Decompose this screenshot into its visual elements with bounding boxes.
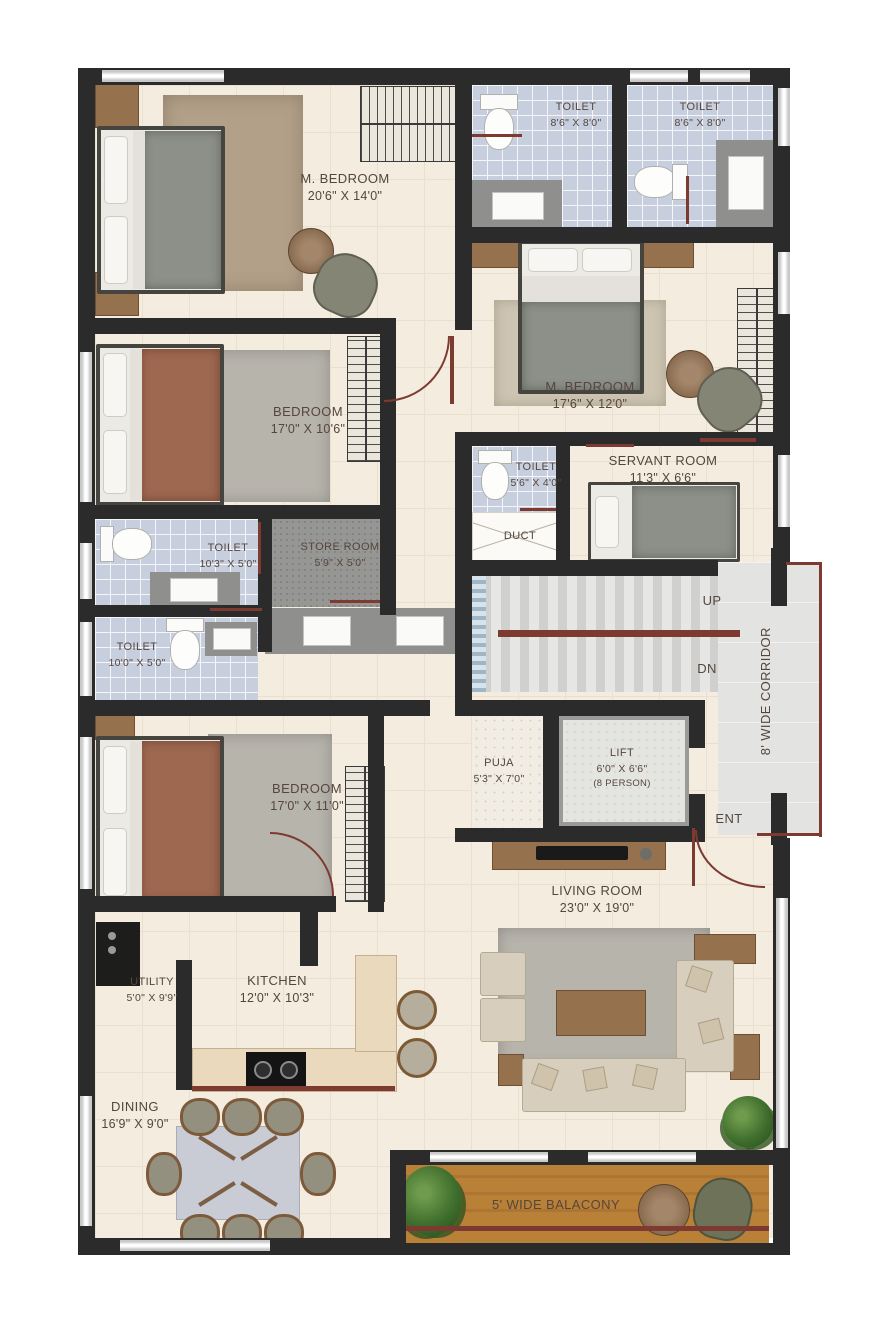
window xyxy=(80,543,92,599)
label-utility: UTILITY 5'0" X 9'9" xyxy=(127,975,178,1006)
bed xyxy=(97,126,225,294)
floor-plan: M. BEDROOM 20'6" X 14'0" TOILET 8'6" X 8… xyxy=(0,0,887,1331)
dining-chair xyxy=(300,1152,336,1196)
room-name: 5' WIDE BALACONY xyxy=(492,1196,620,1214)
room-dims: 8'6" X 8'0" xyxy=(551,116,602,131)
wall xyxy=(455,68,472,330)
room-name: 8' WIDE CORRIDOR xyxy=(757,627,775,755)
stair-rail xyxy=(472,576,486,692)
label-duct: DUCT xyxy=(504,529,536,545)
armchair xyxy=(480,952,526,996)
window xyxy=(630,70,688,82)
label-servant-room: SERVANT ROOM 11'3" X 6'6" xyxy=(609,452,718,488)
room-dims: 17'0" X 11'0" xyxy=(270,798,344,816)
label-toilet-mid: TOILET 10'3" X 5'0" xyxy=(199,541,256,572)
room-name: BEDROOM xyxy=(270,780,344,798)
room-dims: 10'3" X 5'0" xyxy=(199,557,256,572)
washbasin xyxy=(728,156,764,210)
door-line xyxy=(520,508,556,511)
door-line xyxy=(210,608,262,611)
room-name: BEDROOM xyxy=(271,403,346,421)
wall xyxy=(612,78,627,235)
label-balcony: 5' WIDE BALACONY xyxy=(492,1196,620,1214)
wall-lift-right xyxy=(689,700,705,748)
label-toilet-lower: TOILET 10'0" X 5'0" xyxy=(108,640,165,671)
wall-lift-left xyxy=(543,700,559,842)
window xyxy=(778,252,790,314)
label-entrance: ENT xyxy=(715,810,742,828)
window xyxy=(778,88,790,146)
window xyxy=(778,455,790,527)
wall-stub xyxy=(771,548,787,606)
label-puja: PUJA 5'3" X 7'0" xyxy=(474,756,525,787)
room-name: KITCHEN xyxy=(240,972,315,990)
bed xyxy=(96,344,224,506)
room-name: PUJA xyxy=(474,756,525,772)
room-dims: 23'0" X 19'0" xyxy=(551,900,642,918)
sofa-side-table xyxy=(498,1054,524,1086)
burner xyxy=(280,1061,298,1079)
room-name: DUCT xyxy=(504,529,536,545)
door-line xyxy=(586,444,634,447)
window xyxy=(80,352,92,502)
armchair xyxy=(480,998,526,1042)
room-dims: 17'6" X 12'0" xyxy=(545,396,634,414)
wall xyxy=(176,960,192,1090)
stairs-direction: DN xyxy=(697,660,717,678)
room-name: SERVANT ROOM xyxy=(609,452,718,470)
label-lift: LIFT 6'0" X 6'6" (8 PERSON) xyxy=(593,746,650,790)
window xyxy=(700,70,750,82)
room-name: TOILET xyxy=(511,460,562,476)
corridor-boundary xyxy=(819,562,822,837)
room-name: M. BEDROOM xyxy=(545,378,634,396)
room-dims: 16'9" X 9'0" xyxy=(101,1116,168,1134)
room-dims: 5'6" X 4'0" xyxy=(511,476,562,491)
room-name: TOILET xyxy=(551,100,602,116)
servant-bed xyxy=(588,482,740,562)
washer-dial xyxy=(108,946,116,954)
wall-lift-bottom xyxy=(543,826,705,842)
room-dims: 8'6" X 8'0" xyxy=(675,116,726,131)
decor xyxy=(640,848,652,860)
wall xyxy=(78,605,258,617)
nightstand xyxy=(95,84,139,128)
wall xyxy=(455,828,555,842)
wall xyxy=(455,227,790,243)
label-master-bedroom-2: M. BEDROOM 17'6" X 12'0" xyxy=(545,378,634,414)
wall-balcony-bottom xyxy=(390,1243,786,1255)
washbasin xyxy=(396,616,444,646)
wall xyxy=(272,505,396,519)
label-corridor: 8' WIDE CORRIDOR xyxy=(757,627,775,755)
wall xyxy=(300,896,318,966)
toilet-wc xyxy=(484,108,514,150)
label-toilet-top-left: TOILET 8'6" X 8'0" xyxy=(551,100,602,131)
room-name: ENT xyxy=(715,810,742,828)
washbasin xyxy=(170,578,218,602)
kitchen-counter-edge xyxy=(192,1086,395,1091)
wall xyxy=(455,440,472,716)
wall xyxy=(455,560,718,576)
stair-rail-line xyxy=(498,630,740,637)
room-name: TOILET xyxy=(675,100,726,116)
room-dims: 11'3" X 6'6" xyxy=(609,470,718,488)
room-name: TOILET xyxy=(108,640,165,656)
room-dims: 10'0" X 5'0" xyxy=(108,656,165,671)
corridor-boundary xyxy=(757,833,822,836)
window xyxy=(80,1096,92,1226)
label-store-room: STORE ROOM 5'9" X 5'0" xyxy=(297,540,383,571)
door-line xyxy=(700,438,756,442)
room-name: LIVING ROOM xyxy=(551,882,642,900)
toilet-wc xyxy=(112,528,152,560)
bed xyxy=(96,736,224,906)
wall xyxy=(78,318,396,334)
coffee-table xyxy=(556,990,646,1036)
room-name: STORE ROOM xyxy=(297,540,383,556)
kitchen-counter xyxy=(355,955,397,1052)
window xyxy=(588,1152,696,1162)
washbasin xyxy=(303,616,351,646)
label-master-bedroom-1: M. BEDROOM 20'6" X 14'0" xyxy=(300,170,389,206)
window xyxy=(80,622,92,696)
window xyxy=(102,70,224,82)
room-name: LIFT xyxy=(593,746,650,762)
bar-stool xyxy=(397,990,437,1030)
bed xyxy=(518,240,644,394)
window xyxy=(120,1240,270,1251)
dining-chair xyxy=(146,1152,182,1196)
label-toilet-servant: TOILET 5'6" X 4'0" xyxy=(511,460,562,491)
dining-chair xyxy=(264,1098,304,1136)
room-dims: 5'0" X 9'9" xyxy=(127,991,178,1006)
toilet-wc xyxy=(634,166,676,198)
room-dims: 17'0" X 10'6" xyxy=(271,421,346,439)
dining-table xyxy=(176,1126,300,1220)
room-dims: 20'6" X 14'0" xyxy=(300,188,389,206)
window xyxy=(80,737,92,889)
label-kitchen: KITCHEN 12'0" X 10'3" xyxy=(240,972,315,1008)
label-stairs-dn: DN xyxy=(697,660,717,678)
tv xyxy=(536,846,628,860)
plant xyxy=(722,1096,774,1148)
wall xyxy=(78,505,272,519)
door-line xyxy=(258,522,261,574)
room-dims: 12'0" X 10'3" xyxy=(240,990,315,1008)
toilet-wc xyxy=(170,630,200,670)
label-bedroom-1: BEDROOM 17'0" X 10'6" xyxy=(271,403,346,439)
wall xyxy=(455,700,705,716)
sofa-side-table xyxy=(730,1034,760,1080)
bar-stool xyxy=(397,1038,437,1078)
washbasin xyxy=(492,192,544,220)
room-dims: 5'9" X 5'0" xyxy=(297,556,383,571)
label-living-room: LIVING ROOM 23'0" X 19'0" xyxy=(551,882,642,918)
window xyxy=(430,1152,548,1162)
wall xyxy=(78,896,336,912)
door-line xyxy=(330,600,380,603)
toilet-wc xyxy=(481,462,509,500)
room-name: DINING xyxy=(101,1098,168,1116)
lift-capacity: (8 PERSON) xyxy=(593,777,650,790)
dining-chair xyxy=(222,1098,262,1136)
washer-dial xyxy=(108,932,116,940)
label-bedroom-2: BEDROOM 17'0" X 11'0" xyxy=(270,780,344,816)
balcony-edge xyxy=(406,1226,769,1231)
door-line xyxy=(472,134,522,137)
room-name: M. BEDROOM xyxy=(300,170,389,188)
room-dims: 5'3" X 7'0" xyxy=(474,772,525,787)
room-name: UTILITY xyxy=(127,975,178,991)
cushion xyxy=(582,1066,607,1091)
wall xyxy=(368,700,384,912)
corridor-boundary xyxy=(786,562,822,565)
washbasin xyxy=(213,628,251,650)
stairs-direction: UP xyxy=(703,592,722,610)
burner xyxy=(254,1061,272,1079)
room-dims: 6'0" X 6'6" xyxy=(593,762,650,777)
wall-balcony-left xyxy=(390,1150,406,1255)
cushion xyxy=(632,1064,658,1090)
label-toilet-top-right: TOILET 8'6" X 8'0" xyxy=(675,100,726,131)
room-name: TOILET xyxy=(199,541,256,557)
wardrobe xyxy=(360,86,458,162)
door-line xyxy=(686,176,689,224)
label-stairs-up: UP xyxy=(703,592,722,610)
dining-chair xyxy=(180,1098,220,1136)
window xyxy=(776,898,788,1148)
door-line xyxy=(450,336,454,404)
label-dining: DINING 16'9" X 9'0" xyxy=(101,1098,168,1134)
